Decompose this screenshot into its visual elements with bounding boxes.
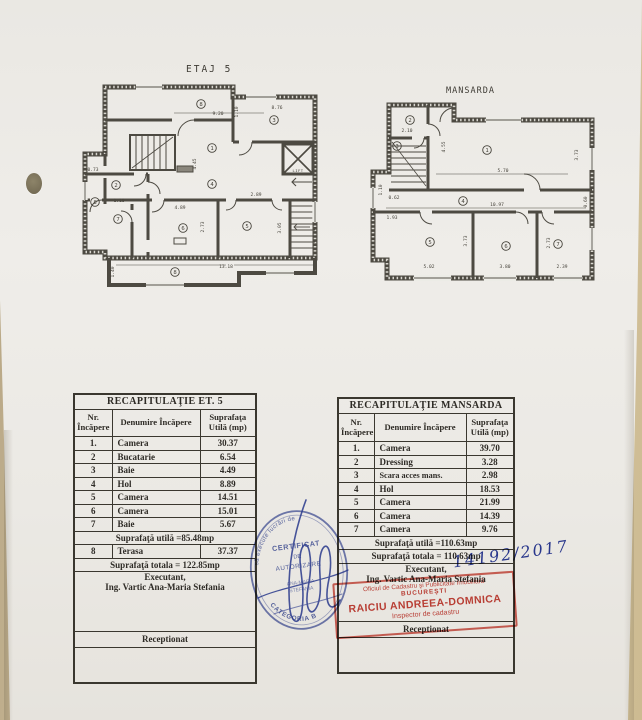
floor-plan-mansarda: 2 3 1 4 5 6 7 2.10 4.55 5.70 3.73 10.97 … [356, 98, 596, 283]
entrance-arrow [292, 178, 312, 186]
dim: 2.89 [250, 192, 261, 198]
table-row: 6Camera14.39 [338, 509, 514, 523]
room-label: 5 [245, 224, 248, 230]
dim: 3.05 [277, 222, 283, 233]
dim: 1.10 [234, 106, 240, 117]
door-arcs [414, 108, 554, 224]
stamp-line: AUTORIZARE [275, 560, 322, 573]
table-row: 1.Camera30.37 [74, 437, 256, 451]
plan-detail-box2 [174, 238, 186, 244]
dim: 4.45 [192, 158, 198, 169]
dim: 5.02 [423, 264, 434, 270]
dim: 5.70 [497, 168, 508, 174]
room-label: 5 [428, 240, 431, 246]
col-header: Denumire Încăpere [374, 414, 466, 442]
dim: 2.73 [546, 237, 552, 248]
room-label: 4 [210, 182, 214, 188]
dim: 2.10 [401, 128, 412, 134]
room-label: 7 [116, 217, 119, 223]
executant-label: Executant, [77, 572, 253, 582]
receptionat-label: Receptionat [74, 632, 256, 648]
room-label: 4 [461, 199, 465, 205]
col-header: Suprafaţa Utilă (mp) [466, 414, 514, 442]
empty-cell [74, 648, 256, 684]
table-row: 5Camera14.51 [74, 491, 256, 505]
table-row: 3Scara acces mans.2.98 [338, 469, 514, 483]
table-row: 2Bucatarie6.54 [74, 450, 256, 464]
table-row: 5Camera21.99 [338, 496, 514, 510]
totala-note: Suprafaţă totala = 122.85mp [74, 558, 256, 572]
dim: 2.39 [556, 264, 567, 270]
room-label: 3 [272, 118, 275, 124]
plan-title-etaj5: ETAJ 5 [186, 64, 232, 75]
table-recap-etaj5: RECAPITULAŢIE ET. 5 Nr. Încăpere Denumir… [73, 393, 257, 684]
table-row: 8Terasa37.37 [74, 545, 256, 559]
room-label: 8 [199, 102, 203, 108]
room-label: 6 [504, 244, 507, 250]
table-row: 2Dressing3.28 [338, 455, 514, 469]
table-row: 7Camera9.76 [338, 523, 514, 537]
dim: 2.73 [200, 221, 206, 232]
floor-plan-etaj5: 8 3 1 2 4 8 7 6 5 8 LIFT 9.20 8.76 1.10 … [76, 82, 334, 294]
room-label: 1 [210, 146, 213, 152]
dim: 4.55 [441, 141, 447, 152]
etaj5-room-numbers [91, 100, 279, 277]
table-row: 1.Camera39.70 [338, 442, 514, 456]
table-row: 3Baie4.49 [74, 464, 256, 478]
room-label: 7 [556, 242, 559, 248]
dim: 0.62 [388, 195, 399, 201]
executant-block: Executant, Ing. Vartic Ana-Maria Stefani… [74, 572, 256, 632]
room-label: 3 [395, 144, 398, 150]
dim: 9.20 [212, 111, 223, 117]
punch-hole [26, 173, 42, 194]
dim: 3.80 [499, 264, 510, 270]
dim: 0.60 [583, 196, 589, 207]
table-title: RECAPITULAŢIE MANSARDA [338, 398, 514, 414]
plan-detail-box [177, 166, 193, 172]
plan-title-mansarda: MANSARDA [446, 86, 495, 96]
dim: 0.73 [87, 167, 98, 173]
dim: 4.89 [174, 205, 185, 211]
dim: 3.73 [463, 235, 469, 246]
dim: 1.40 [110, 266, 116, 277]
dim: 1.10 [113, 198, 124, 204]
dim: 10.97 [490, 202, 504, 208]
paper-edge-shadow-left [4, 430, 13, 720]
col-header: Nr. Încăpere [74, 410, 112, 437]
room-label: 2 [114, 183, 117, 189]
col-header: Suprafaţa Utilă (mp) [200, 410, 256, 437]
dim: 13.18 [219, 264, 233, 270]
dim: 1.10 [378, 184, 384, 195]
table-row: 4Hol18.53 [338, 482, 514, 496]
room-label: 1 [485, 148, 488, 154]
col-header: Denumire Încăpere [112, 410, 200, 437]
paper-edge-shadow-right [624, 330, 634, 720]
stamp-line: CERTIFICAT [272, 538, 321, 553]
executant-name: Ing. Vartic Ana-Maria Stefania [77, 582, 253, 592]
room-label: 2 [408, 118, 411, 124]
utila-note: Suprafaţă utilă =85.48mp [74, 531, 256, 545]
room-label: 6 [181, 226, 184, 232]
etaj5-stairs-upper [130, 135, 175, 170]
col-header: Nr. Încăpere [338, 414, 374, 442]
table-row: 4Hol8.89 [74, 477, 256, 491]
table-title: RECAPITULAŢIE ET. 5 [74, 394, 256, 410]
dim: 1.93 [386, 215, 397, 221]
etaj5-stairs-lower [290, 206, 315, 248]
dim: 3.73 [574, 149, 580, 160]
room-label: 8 [173, 270, 177, 276]
lift-label: LIFT [293, 168, 304, 173]
empty-cell [338, 637, 514, 673]
table-row: 7Baie5.67 [74, 518, 256, 532]
scanned-document-photo: ETAJ 5 [0, 0, 642, 720]
dim: 8.76 [271, 105, 282, 111]
table-row: 6Camera15.01 [74, 504, 256, 518]
